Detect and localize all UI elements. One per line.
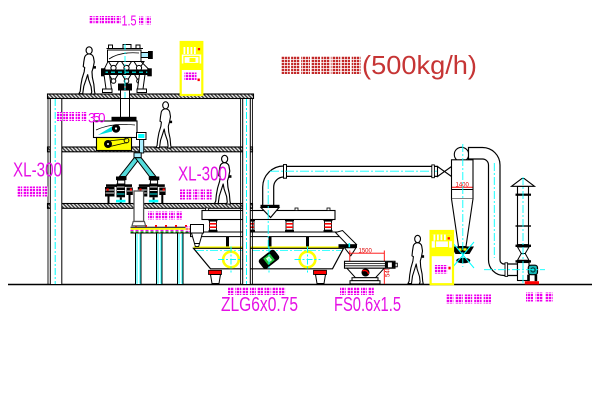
svg-text:350: 350 [88,111,106,126]
svg-text:ZLG6x0.75: ZLG6x0.75 [221,294,298,316]
svg-text:1.5: 1.5 [122,13,137,30]
svg-text:XL-300: XL-300 [13,160,62,182]
svg-text:1500: 1500 [359,248,373,254]
svg-text:XL-300: XL-300 [178,164,227,186]
svg-text:FS0.6x1.5: FS0.6x1.5 [334,294,401,316]
svg-text:(500kg/h): (500kg/h) [362,50,477,80]
